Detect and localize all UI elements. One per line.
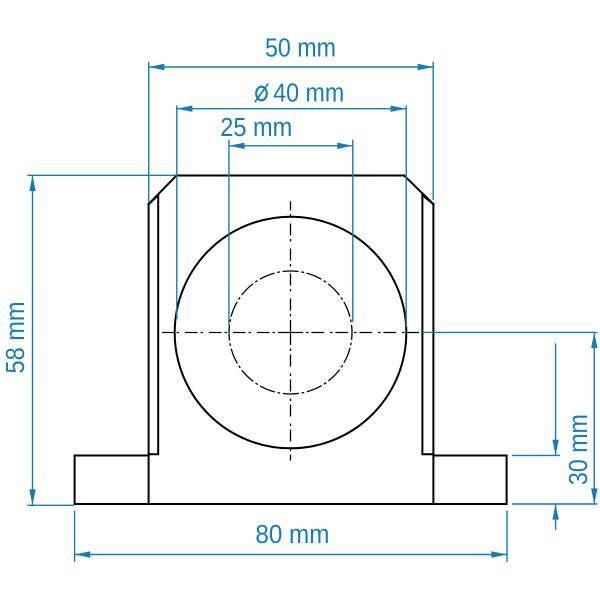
svg-text:50 mm: 50 mm — [265, 35, 336, 63]
svg-text:80 mm: 80 mm — [255, 521, 329, 549]
svg-text:25 mm: 25 mm — [220, 114, 292, 142]
svg-text:30 mm: 30 mm — [565, 414, 593, 485]
svg-text:58 mm: 58 mm — [2, 302, 30, 374]
svg-text:40 mm: 40 mm — [273, 79, 344, 107]
